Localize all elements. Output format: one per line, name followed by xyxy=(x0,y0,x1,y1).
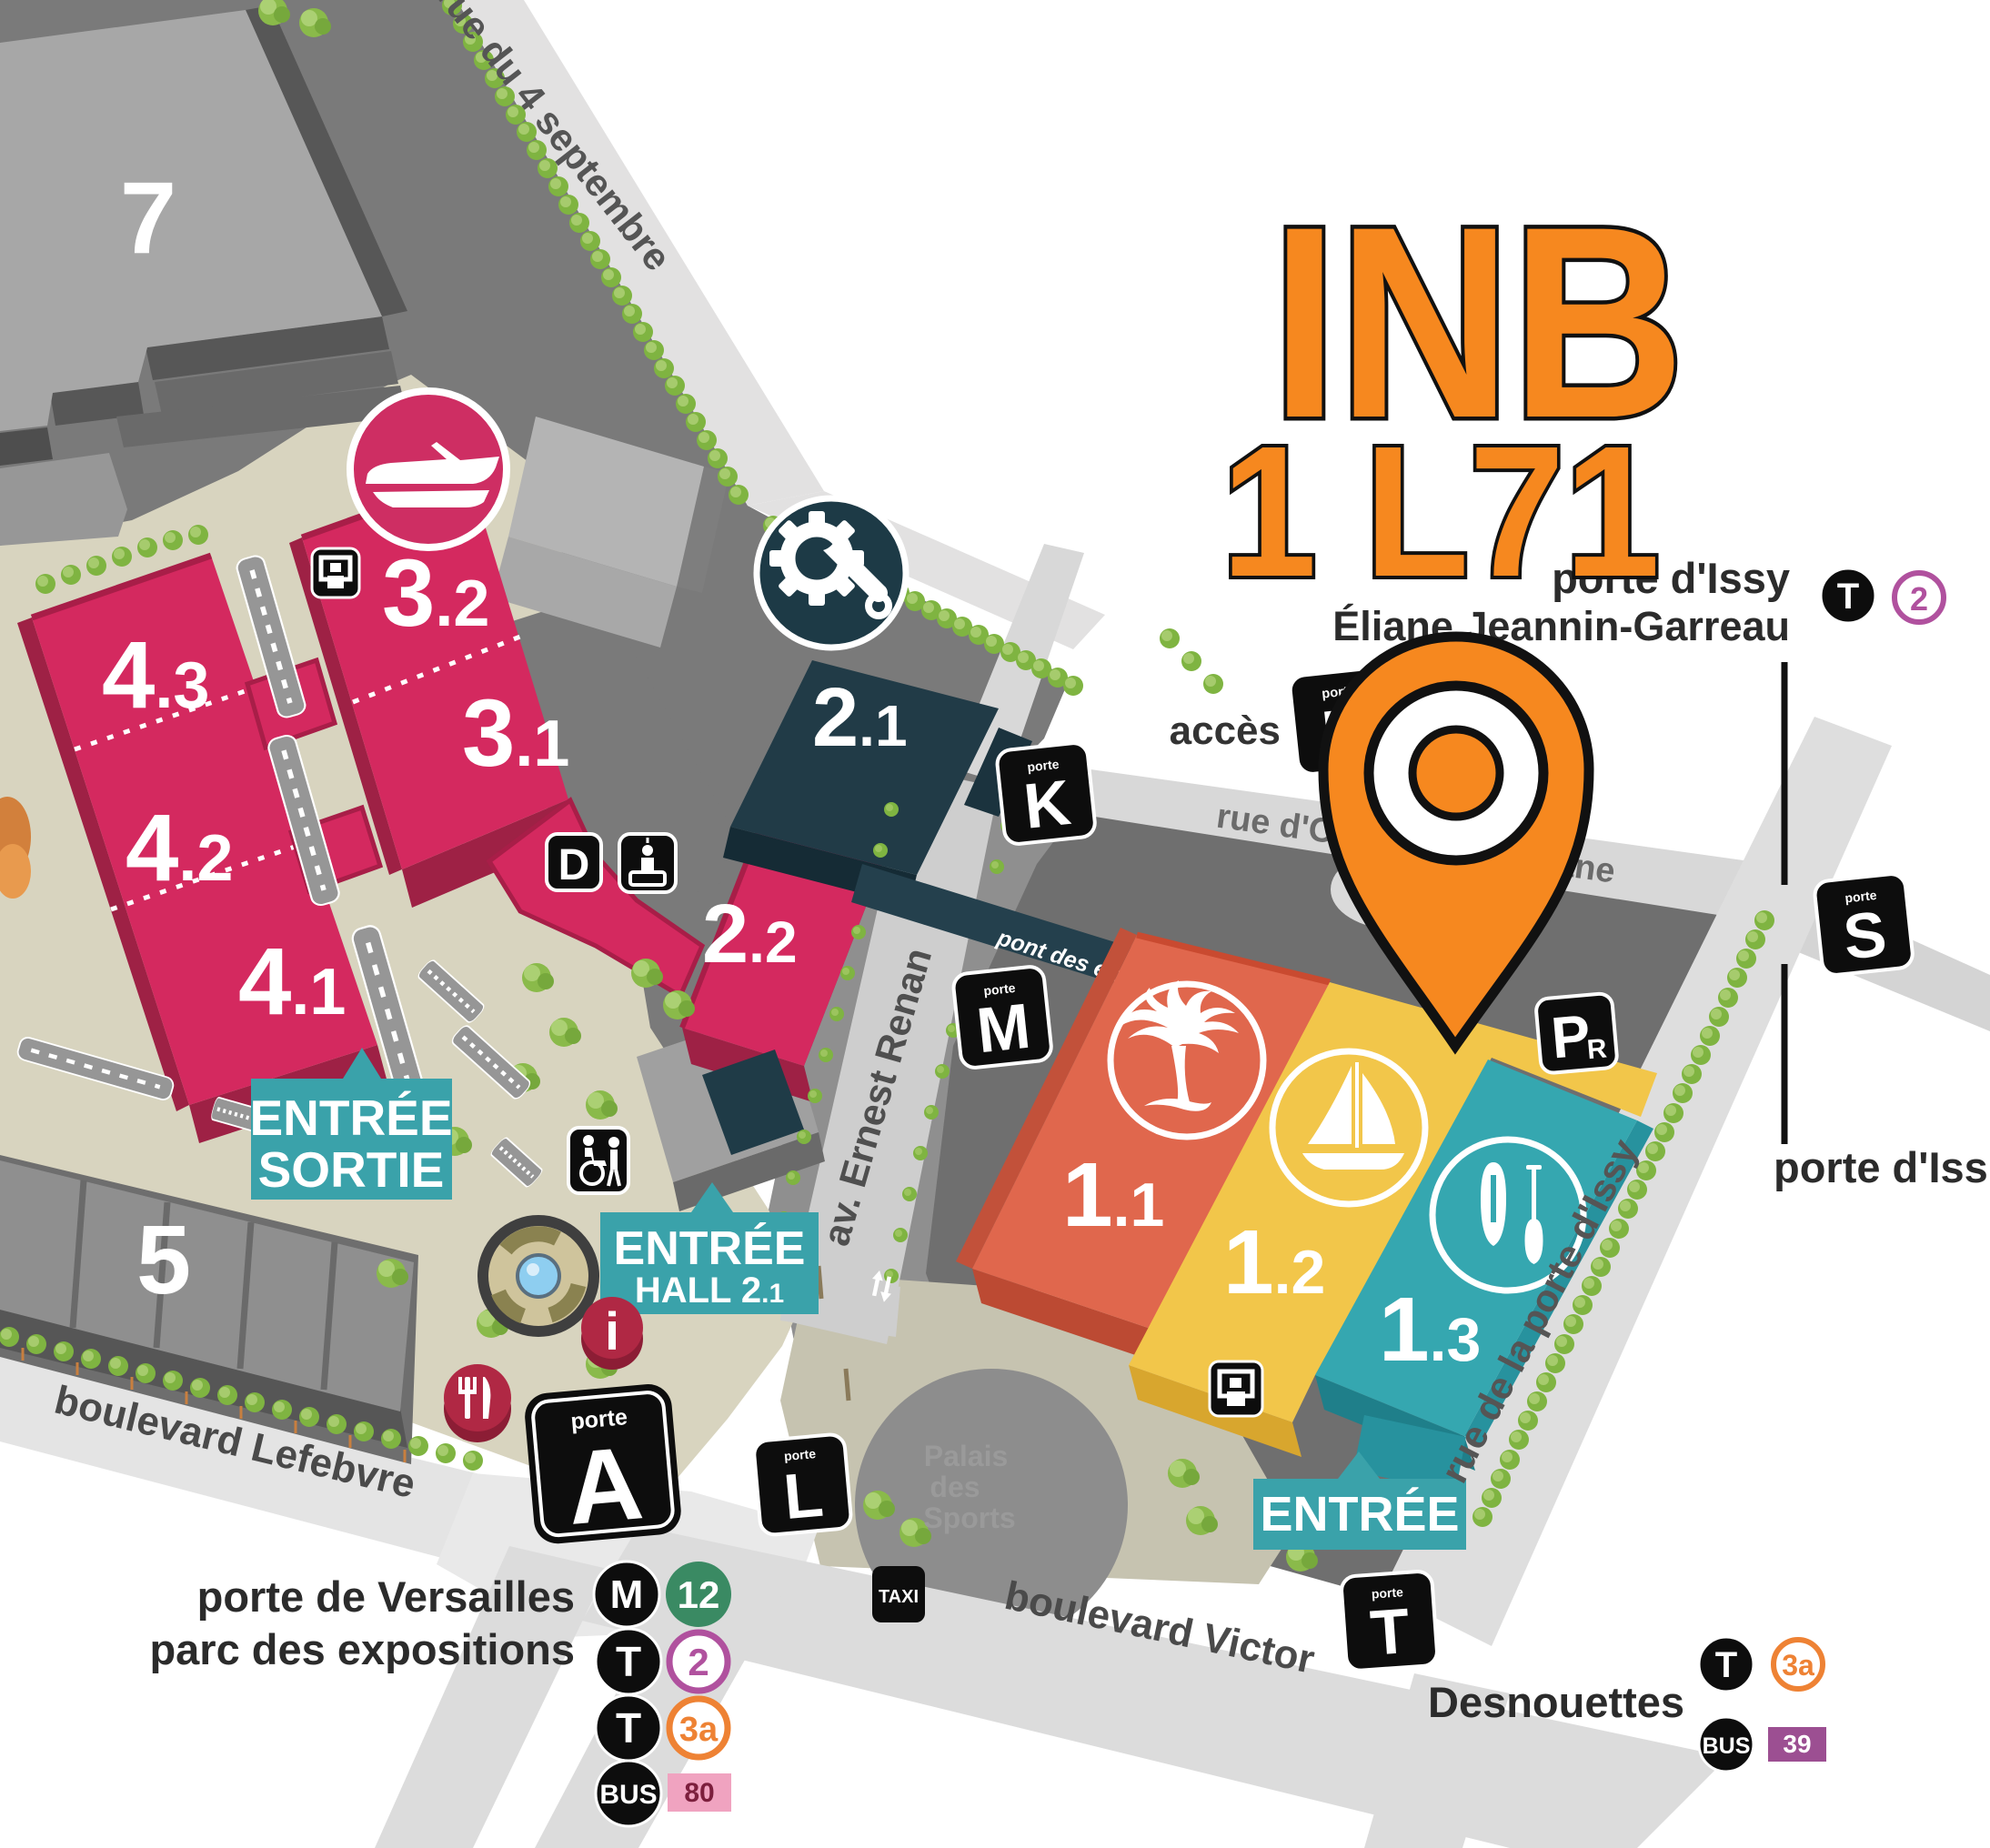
svg-text:L: L xyxy=(781,1459,826,1532)
svg-text:3a: 3a xyxy=(1782,1649,1814,1682)
svg-text:2: 2 xyxy=(1910,580,1928,618)
svg-text:i: i xyxy=(605,1302,619,1361)
svg-text:80: 80 xyxy=(684,1778,714,1808)
svg-text:accès: accès xyxy=(1170,708,1281,753)
svg-text:Desnouettes: Desnouettes xyxy=(1428,1678,1684,1726)
svg-text:12: 12 xyxy=(678,1573,720,1616)
svg-text:BUS: BUS xyxy=(1703,1733,1751,1759)
svg-text:BUS: BUS xyxy=(599,1780,657,1810)
svg-text:ENTRÉE: ENTRÉE xyxy=(249,1090,452,1146)
svg-text:T: T xyxy=(1837,577,1859,617)
svg-text:R: R xyxy=(1586,1033,1609,1065)
svg-text:A: A xyxy=(563,1425,648,1547)
svg-text:2: 2 xyxy=(688,1641,709,1683)
svg-text:M: M xyxy=(610,1572,644,1617)
svg-text:parc des expositions: parc des expositions xyxy=(149,1625,575,1673)
svg-text:T: T xyxy=(616,1704,641,1752)
svg-text:S: S xyxy=(1840,898,1890,972)
svg-text:SORTIE: SORTIE xyxy=(258,1141,445,1198)
svg-text:porte de Versailles: porte de Versailles xyxy=(197,1572,575,1621)
svg-text:7: 7 xyxy=(120,161,176,275)
svg-text:T: T xyxy=(616,1638,641,1685)
svg-text:K: K xyxy=(1020,767,1073,842)
svg-text:TAXI: TAXI xyxy=(879,1587,919,1607)
svg-text:39: 39 xyxy=(1783,1730,1811,1758)
svg-text:des: des xyxy=(930,1471,980,1503)
svg-text:T: T xyxy=(1715,1645,1737,1685)
svg-text:5: 5 xyxy=(136,1204,191,1314)
svg-text:D: D xyxy=(558,841,590,889)
svg-text:M: M xyxy=(973,990,1033,1067)
svg-text:porte d'Iss: porte d'Iss xyxy=(1774,1143,1988,1191)
svg-text:3a: 3a xyxy=(679,1711,719,1749)
svg-text:1 L71: 1 L71 xyxy=(1221,407,1660,616)
svg-text:ENTRÉE: ENTRÉE xyxy=(614,1222,806,1275)
svg-text:T: T xyxy=(1368,1595,1412,1669)
svg-text:Sports: Sports xyxy=(923,1501,1015,1534)
svg-text:Palais: Palais xyxy=(924,1440,1009,1472)
svg-text:ENTRÉE: ENTRÉE xyxy=(1260,1487,1459,1542)
